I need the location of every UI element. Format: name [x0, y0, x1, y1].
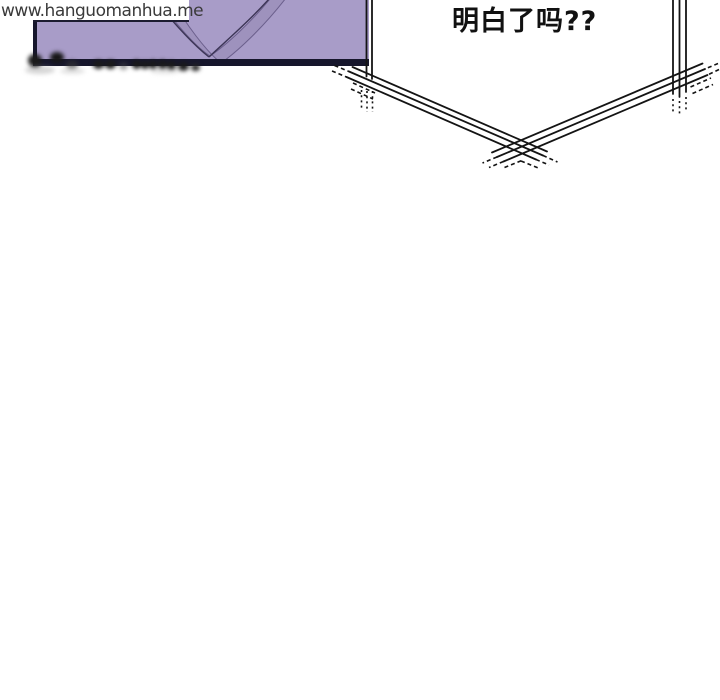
speech-bubble-text: 明白了吗?? — [452, 6, 622, 38]
